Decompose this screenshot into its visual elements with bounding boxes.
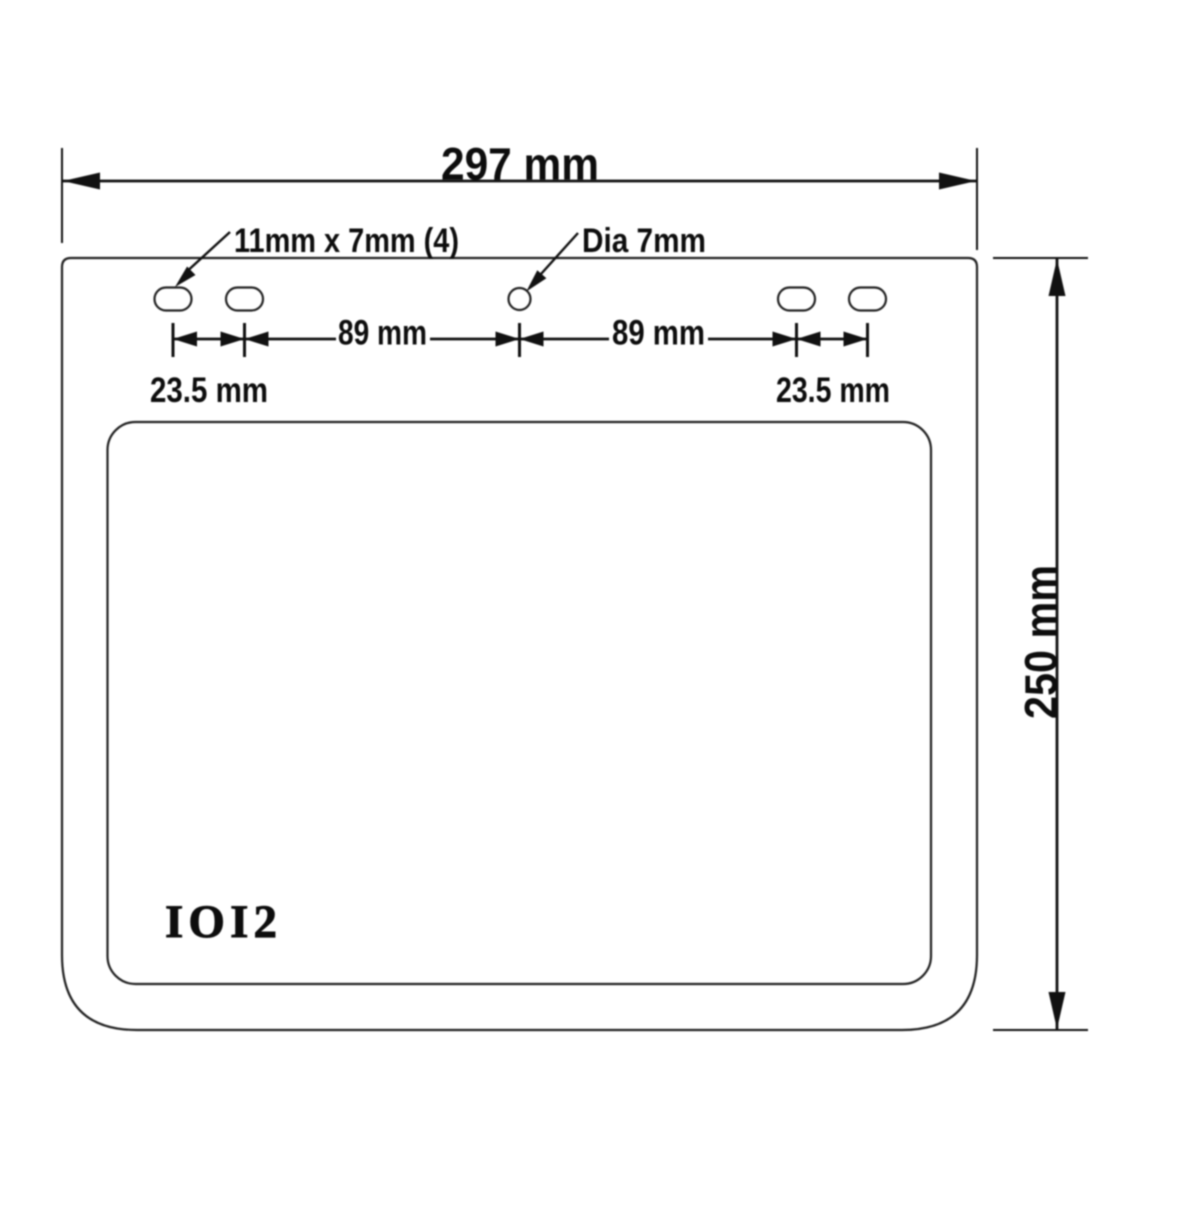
svg-text:89 mm: 89 mm — [338, 314, 427, 353]
svg-text:250 mm: 250 mm — [1016, 565, 1067, 719]
svg-text:Dia 7mm: Dia 7mm — [582, 222, 706, 260]
svg-text:23.5 mm: 23.5 mm — [776, 371, 890, 410]
svg-text:IOI2: IOI2 — [165, 896, 277, 948]
svg-text:23.5 mm: 23.5 mm — [150, 371, 268, 410]
svg-text:11mm x 7mm (4): 11mm x 7mm (4) — [234, 222, 459, 260]
svg-text:297 mm: 297 mm — [441, 139, 599, 190]
svg-text:89 mm: 89 mm — [612, 314, 705, 353]
